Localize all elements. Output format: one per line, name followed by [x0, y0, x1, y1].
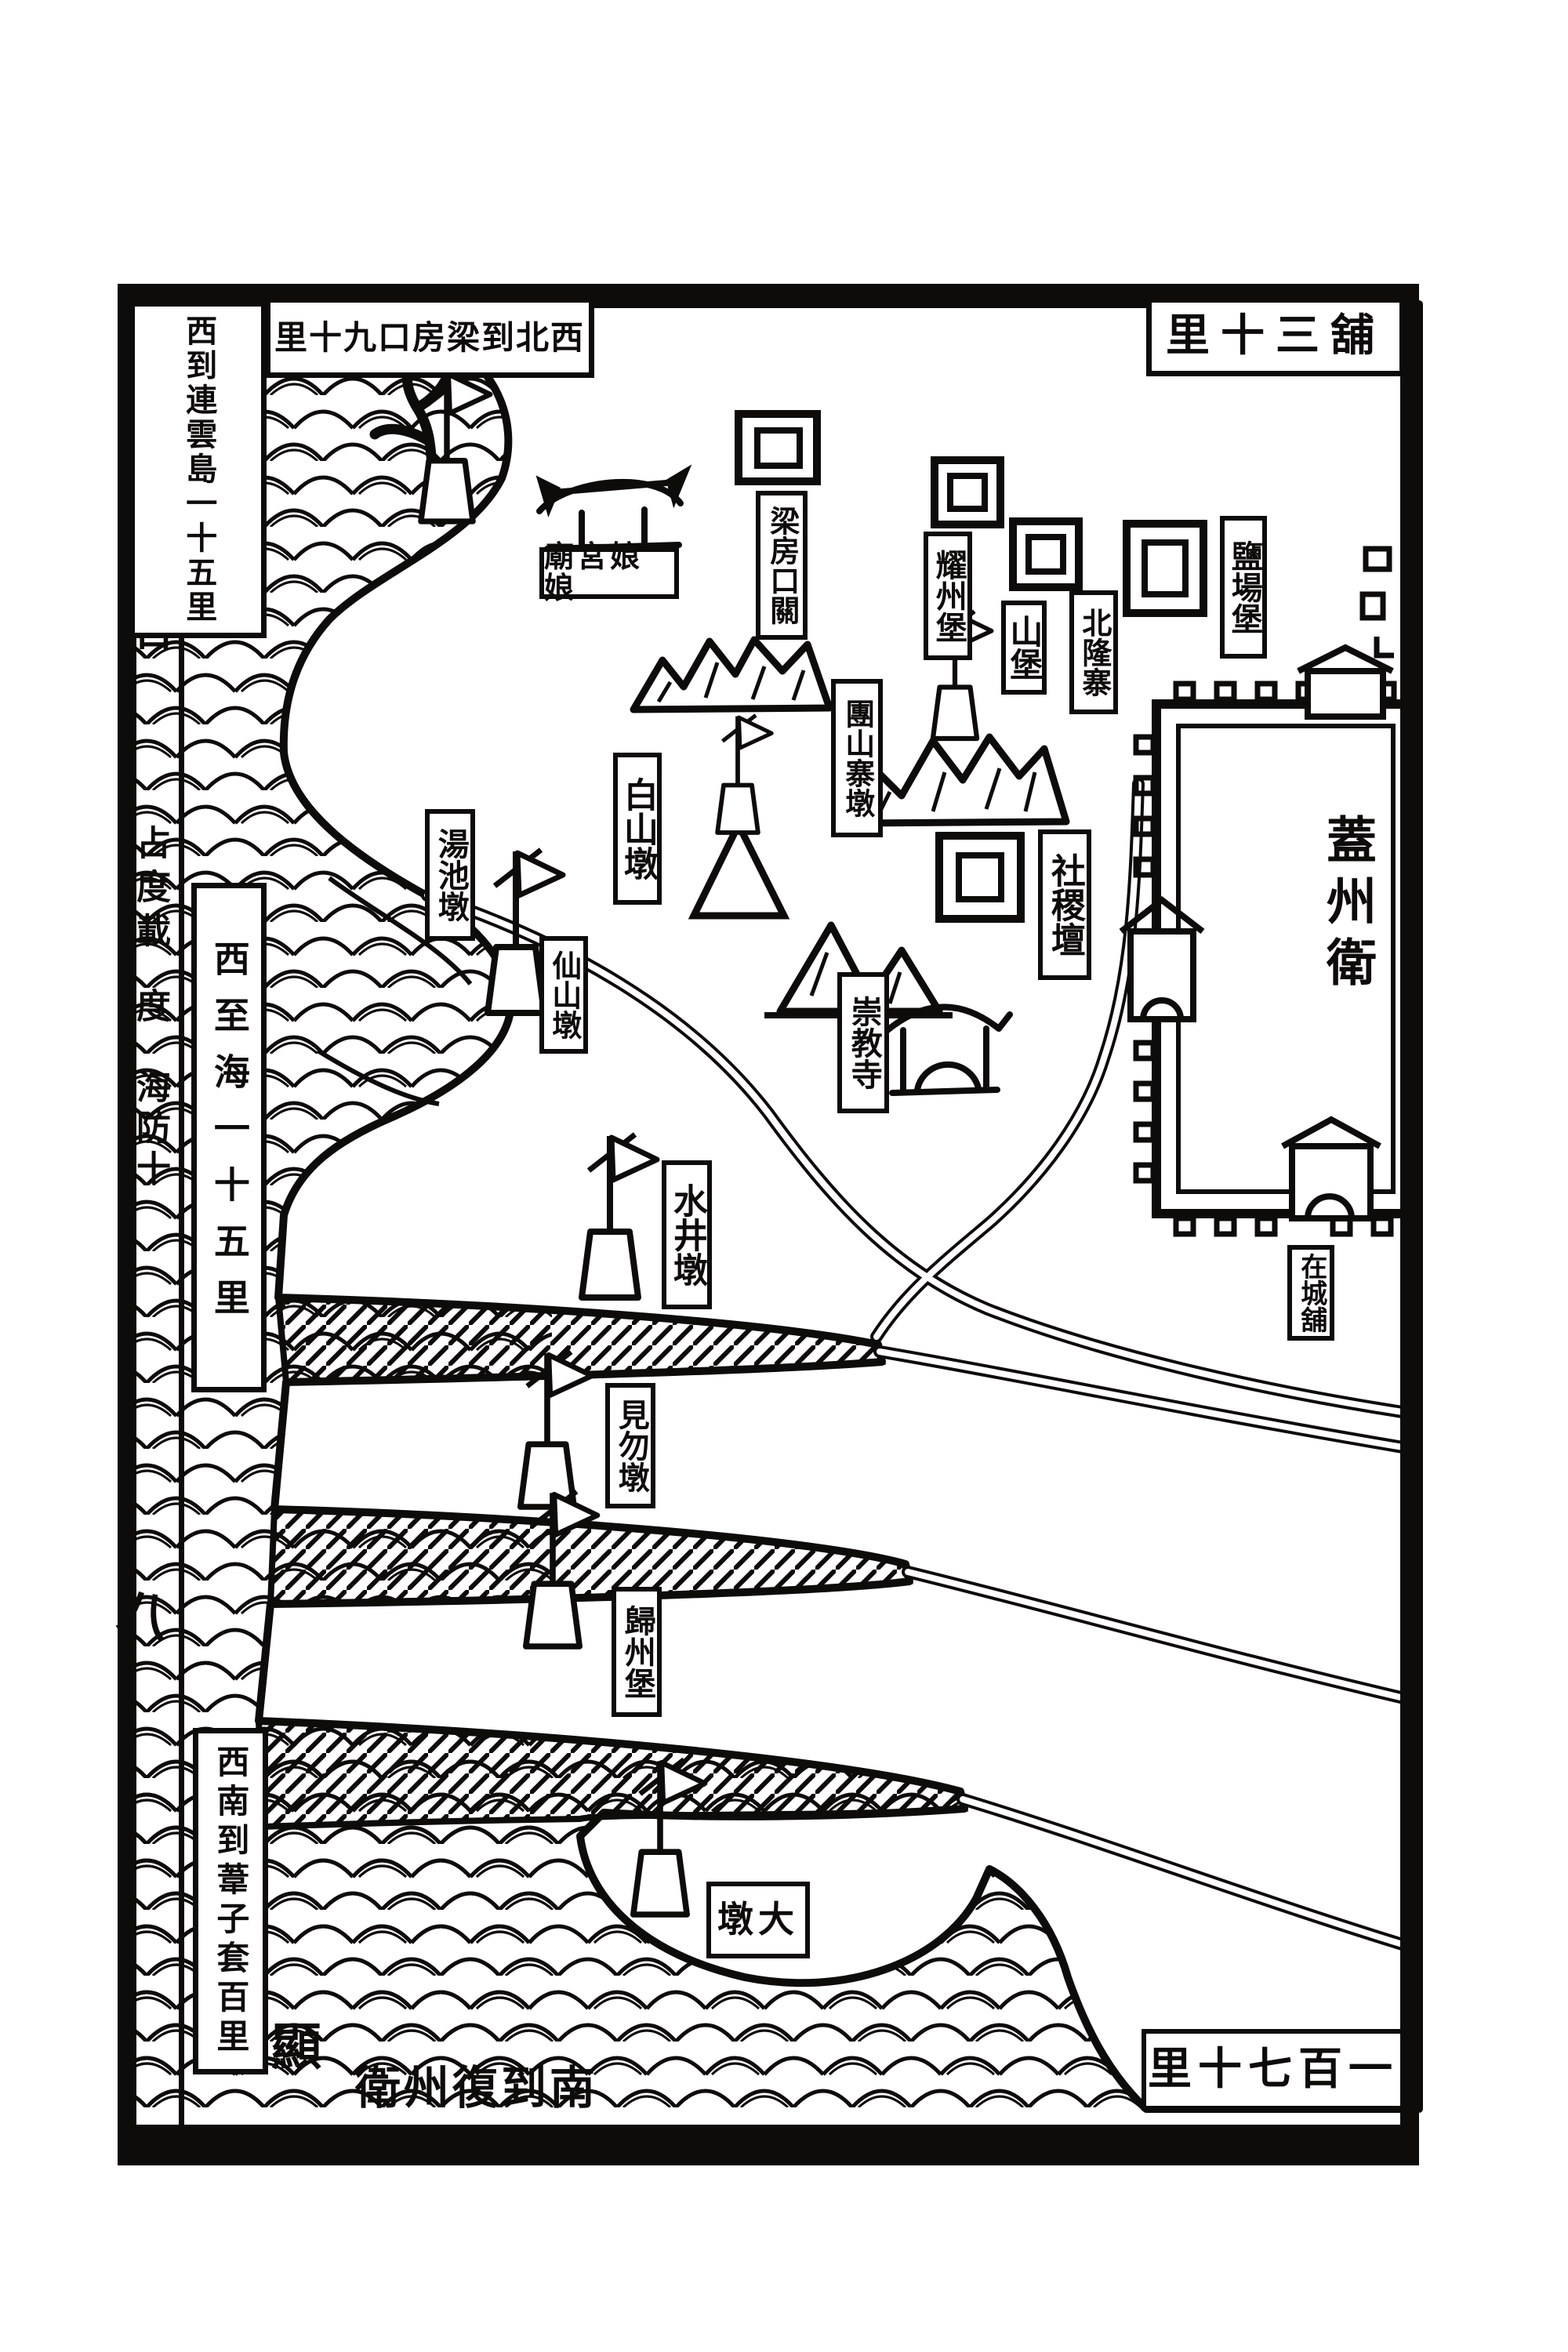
note-top-left: 里十九口房梁到北西	[265, 303, 594, 378]
shore-mark: 顯	[265, 2010, 328, 2076]
label-shuijing-dun: 水井墩	[662, 1160, 712, 1309]
label-xianshan-dun: 仙山墩	[539, 936, 588, 1054]
note-left-lower: 西南到葦子套百里	[193, 1728, 268, 2074]
label-tangchi-dun: 湯池墩	[425, 809, 475, 941]
label-tuanshan-zhai-dun: 團山寨墩	[831, 679, 883, 837]
margin-part: 海防十	[127, 1063, 172, 1196]
note-left-middle: 西至海一十五里	[191, 883, 267, 1392]
label-shan-bao: 山堡	[1001, 601, 1047, 695]
label-niangniang-gong: 廟宮娘娘	[539, 547, 679, 599]
note-left-upper: 西到連雲島一十五里	[135, 301, 267, 638]
label-sheji-tan: 社稷壇	[1038, 829, 1091, 980]
label-gaizhou-wei: 蓋州衛	[1314, 808, 1380, 1004]
label-baishan-dun: 白山墩	[613, 753, 662, 905]
label-da-dun: 墩大	[706, 1882, 810, 1958]
label-guizhou-bao: 歸州堡	[612, 1587, 662, 1717]
margin-volume: 度	[127, 982, 172, 1029]
label-yanchang-bao: 鹽場堡	[1220, 516, 1267, 659]
note-bottom-middle: 衛州復到南	[347, 2053, 606, 2115]
label-liangfangkou-guan: 梁房口關	[756, 491, 808, 640]
label-zaicheng-pu: 在城舖	[1287, 1245, 1334, 1341]
label-jianwu-dun: 見勿墩	[605, 1383, 655, 1508]
map-page: 武備志卷二百 占度載 度 海防十 八 里十九口房梁到北西 里十三舖 西到連雲島一…	[0, 0, 1568, 2352]
note-bottom-right: 里十七百一	[1142, 2029, 1405, 2111]
label-yaozhou-bao: 耀州堡	[924, 532, 972, 660]
margin-section: 占度載	[127, 820, 172, 961]
label-chongjiao-si: 崇教寺	[837, 972, 889, 1113]
note-top-right: 里十三舖	[1146, 303, 1405, 376]
label-beilong-zhai: 北隆寨	[1069, 590, 1118, 714]
